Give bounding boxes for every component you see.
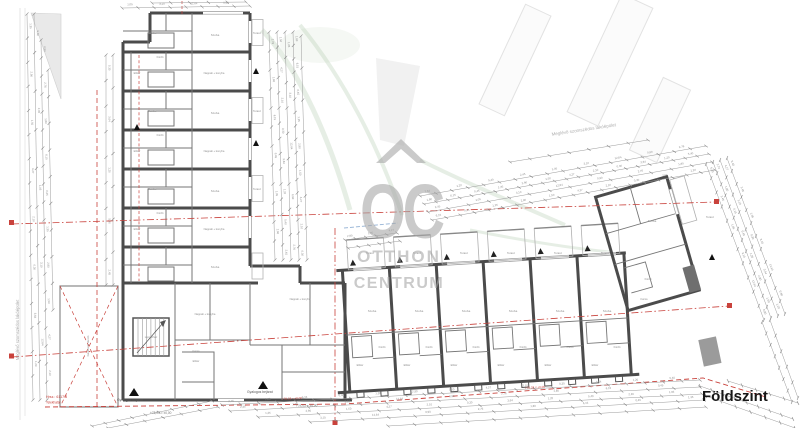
room-label: Fürdő bbox=[426, 345, 433, 349]
level-reference-2: +78,03 = ±0,00 bbox=[296, 403, 318, 408]
dim-label: 5,40 bbox=[36, 30, 40, 36]
dim-label: 1,80 bbox=[678, 161, 684, 166]
room-label: Nappali + konyha bbox=[290, 297, 311, 301]
room-label: Előtér bbox=[592, 363, 599, 367]
dim-label: 4,27 bbox=[31, 168, 35, 174]
dim-label: 5,40 bbox=[688, 151, 694, 156]
room-label: Szoba bbox=[462, 309, 471, 313]
dim-label: 0,90 bbox=[291, 194, 295, 200]
dim-label: 2,45 bbox=[240, 405, 246, 409]
dim-label: 12,64 bbox=[290, 142, 294, 150]
room-label: Fürdő bbox=[614, 345, 621, 349]
dim-label: 1,50 bbox=[449, 387, 455, 391]
room-label: Előtér bbox=[498, 363, 505, 367]
room-label: Fürdő bbox=[157, 211, 164, 215]
dim-label: 5,40 bbox=[709, 167, 715, 174]
room-label: Szoba bbox=[603, 309, 612, 313]
room-label: Fürdő bbox=[379, 345, 386, 349]
dim-label: 0,45 bbox=[740, 230, 746, 237]
dim-label: 6,15 bbox=[295, 63, 299, 69]
room-label: Terasz bbox=[601, 251, 610, 255]
upper-wing-windows bbox=[203, 11, 252, 238]
dim-label: 1,35 bbox=[375, 391, 381, 395]
room-label: Előtér bbox=[134, 149, 141, 153]
dim-label: 3,64 bbox=[282, 158, 286, 164]
dim-label: 2,76 bbox=[292, 244, 296, 250]
dim-label: 1,05 bbox=[730, 223, 736, 230]
room-label: Terasz bbox=[507, 251, 516, 255]
room-label: Előtér bbox=[134, 227, 141, 231]
dim-label: 1,80 bbox=[272, 77, 276, 83]
dim-label: 0,90 bbox=[449, 394, 455, 398]
room-label: Terasz bbox=[706, 215, 715, 219]
dim-label: 2,90 bbox=[347, 233, 353, 238]
dim-label: 2,90 bbox=[276, 229, 280, 235]
room-label: Előtér bbox=[404, 363, 411, 367]
dim-label: 1,20 bbox=[633, 378, 639, 382]
dim-label: 2,45 bbox=[628, 392, 634, 396]
dim-label: 6,15 bbox=[45, 154, 49, 160]
dim-label: 0,90 bbox=[778, 290, 784, 297]
dim-label: 12,64 bbox=[768, 263, 774, 271]
dim-label: 1,05 bbox=[38, 185, 42, 191]
dim-label: 1,50 bbox=[47, 298, 51, 304]
entrance-label-2: Gyalogos bejárat bbox=[247, 390, 273, 394]
dim-label: 1,50 bbox=[279, 37, 283, 43]
dim-label: 0,45 bbox=[658, 383, 664, 387]
dim-label: 6,15 bbox=[583, 401, 589, 405]
dim-label: 1,35 bbox=[492, 203, 498, 208]
dim-label: 2,45 bbox=[520, 172, 526, 177]
room-label: Szoba bbox=[211, 33, 220, 37]
dim-label: 3,64 bbox=[33, 313, 37, 319]
dim-label: 3,10 bbox=[288, 92, 292, 98]
dim-label: 0,90 bbox=[425, 410, 431, 414]
dim-label: 1,20 bbox=[456, 183, 462, 188]
room-label: Szoba bbox=[211, 189, 220, 193]
dim-label: 3,10 bbox=[344, 399, 350, 403]
room-label: Lépcsőház bbox=[145, 335, 158, 339]
dim-label: 2,45 bbox=[740, 186, 746, 193]
dim-label: 2,76 bbox=[478, 407, 484, 411]
dim-label: 3,64 bbox=[762, 268, 768, 275]
dim-label: 2,45 bbox=[37, 108, 41, 114]
dim-label: 12,64 bbox=[396, 397, 404, 401]
dim-label: 1,35 bbox=[297, 116, 301, 122]
dim-label: 2,10 bbox=[427, 402, 433, 406]
dim-label: 1,80 bbox=[44, 118, 48, 124]
dim-label: 2,90 bbox=[298, 143, 302, 149]
dim-label: 6,15 bbox=[302, 395, 308, 399]
room-label: Szoba bbox=[148, 31, 157, 35]
dim-label: 1,05 bbox=[475, 197, 481, 202]
boundary-label: Telekhatár bbox=[46, 401, 62, 405]
dim-label: 0,90 bbox=[43, 46, 47, 52]
room-label: Nappali + konyha bbox=[204, 227, 225, 231]
dim-label: 1,35 bbox=[265, 411, 271, 415]
dim-label: 1,80 bbox=[265, 397, 271, 401]
dim-label: 2,90 bbox=[757, 274, 763, 281]
watermark-roof-icon bbox=[376, 139, 426, 163]
dim-label: 1,80 bbox=[295, 36, 299, 42]
dim-label: 1,05 bbox=[551, 166, 557, 171]
dim-label: 5,40 bbox=[108, 218, 112, 224]
room-label: Fürdő bbox=[520, 345, 527, 349]
neighbor-building-outline bbox=[479, 0, 690, 163]
room-label: Kamra bbox=[640, 298, 648, 301]
watermark-line1: OTTHON bbox=[357, 247, 441, 266]
room-label: Nappali + konyha bbox=[204, 71, 225, 75]
dim-label: 0,45 bbox=[274, 153, 278, 159]
dim-label: 1,20 bbox=[775, 303, 781, 310]
dim-label: 3,10 bbox=[516, 190, 522, 195]
room-label: Szoba bbox=[148, 109, 157, 113]
dim-label: 5,40 bbox=[730, 160, 736, 167]
floor-title: Földszint bbox=[702, 388, 768, 405]
dim-label: 1,05 bbox=[287, 42, 291, 48]
dim-label: 1,20 bbox=[690, 168, 696, 173]
dim-label: 6,15 bbox=[732, 208, 738, 215]
entrance-label-1: Gyalogos bejárat bbox=[117, 398, 143, 402]
dim-label: 2,76 bbox=[501, 391, 507, 395]
dim-label: 4,27 bbox=[386, 404, 392, 408]
dim-label: 4,27 bbox=[280, 67, 284, 73]
dim-label: 1,80 bbox=[530, 404, 536, 408]
room-label: Terasz bbox=[554, 251, 563, 255]
dim-label: 3,64 bbox=[640, 159, 646, 164]
dim-label: 3,64 bbox=[108, 116, 112, 122]
dim-label: 2,10 bbox=[48, 370, 52, 376]
dim-label: 2,90 bbox=[412, 389, 418, 393]
dim-label: 2,76 bbox=[228, 399, 234, 403]
dim-label: 1,35 bbox=[275, 191, 279, 197]
dim-label: 2,76 bbox=[271, 39, 275, 45]
dim-label: 12,64 bbox=[190, 1, 198, 5]
dim-label: 1,35 bbox=[498, 184, 504, 189]
room-label: Szoba bbox=[368, 309, 377, 313]
dim-label: 2,90 bbox=[305, 409, 311, 413]
dim-label: 1,35 bbox=[29, 23, 33, 29]
dim-label: 0,30 bbox=[32, 264, 36, 270]
room-label: Előtér bbox=[545, 363, 552, 367]
dim-label: 2,10 bbox=[32, 216, 36, 222]
room-label: Előtér bbox=[134, 71, 141, 75]
dim-label: 2,45 bbox=[284, 250, 288, 256]
dim-label: 5,40 bbox=[488, 177, 494, 182]
dim-label: 6,15 bbox=[450, 193, 456, 198]
dim-label: 4,27 bbox=[724, 164, 730, 171]
room-label: Szoba bbox=[556, 309, 565, 313]
entrance-triangle bbox=[129, 388, 139, 396]
dim-label: 3,10 bbox=[759, 238, 765, 245]
parcel-number: Hrsz.: 6117/8 bbox=[46, 395, 67, 399]
dim-label: 5,40 bbox=[588, 394, 594, 398]
dim-label: 1,35 bbox=[688, 395, 694, 399]
dim-label: 5,40 bbox=[284, 219, 288, 225]
dim-label: 0,30 bbox=[467, 400, 473, 404]
room-label: Terasz bbox=[253, 187, 262, 191]
dim-label: 1,05 bbox=[749, 212, 755, 219]
dim-label: 1,35 bbox=[749, 252, 755, 259]
room-label: Fürdő bbox=[473, 345, 480, 349]
room-label: Előtér bbox=[193, 359, 200, 363]
dim-label: 1,35 bbox=[46, 226, 50, 232]
dim-label: 12,64 bbox=[614, 155, 622, 160]
dim-label: 4,27 bbox=[577, 188, 583, 193]
dim-label: 0,30 bbox=[300, 250, 304, 256]
dim-label: 2,90 bbox=[29, 71, 33, 77]
dim-label: 0,30 bbox=[108, 65, 112, 71]
dim-label: 2,76 bbox=[43, 82, 47, 88]
dim-label: 0,30 bbox=[616, 164, 622, 169]
dim-label: 0,45 bbox=[45, 190, 49, 196]
room-label: Nappali + konyha bbox=[204, 149, 225, 153]
dim-label: 2,90 bbox=[520, 198, 526, 203]
dim-label: 0,30 bbox=[559, 381, 565, 385]
dim-label: 4,27 bbox=[486, 385, 492, 389]
room-label: Előtér bbox=[357, 363, 364, 367]
room-label: Terasz bbox=[253, 109, 262, 113]
dim-label: 1,80 bbox=[724, 185, 730, 192]
dim-label: 2,90 bbox=[521, 180, 527, 185]
dim-label: 2,45 bbox=[720, 195, 726, 202]
dim-label: 2,10 bbox=[605, 183, 611, 188]
green-area bbox=[280, 27, 360, 63]
dim-label: 2,76 bbox=[679, 144, 685, 149]
dim-label: 1,20 bbox=[548, 396, 554, 400]
dim-label: 1,20 bbox=[108, 167, 112, 173]
dim-label: 0,45 bbox=[296, 89, 300, 95]
dim-label: 0,45 bbox=[338, 393, 344, 397]
dim-label: 2,10 bbox=[737, 199, 743, 206]
dim-label: 12,64 bbox=[372, 413, 380, 417]
shaft-dark bbox=[682, 265, 701, 293]
neighbor-label-top: Meglévő szomszédos lakóépület bbox=[551, 122, 617, 137]
dim-label: 2,76 bbox=[716, 163, 722, 170]
room-label: Szoba bbox=[415, 309, 424, 313]
dim-label: 3,10 bbox=[320, 415, 326, 419]
dim-label: 12,64 bbox=[555, 183, 563, 188]
dim-label: 0,90 bbox=[597, 176, 603, 181]
dim-label: 1,05 bbox=[669, 390, 675, 394]
level-reference-1: +78,03 = ±0,00 bbox=[150, 411, 172, 415]
entrance-triangle bbox=[258, 381, 268, 389]
dim-label: 12,64 bbox=[41, 339, 45, 347]
dim-label: 0,30 bbox=[750, 233, 756, 240]
shaded-patch bbox=[376, 58, 420, 146]
neighbor-label-left: Meglévő szomszédos lakóépület bbox=[15, 299, 20, 360]
room-label: Előtér bbox=[451, 363, 458, 367]
room-label: Fürdő bbox=[157, 133, 164, 137]
dim-label: 1,20 bbox=[664, 155, 670, 160]
dim-label: 4,27 bbox=[299, 197, 303, 203]
dim-label: 2,10 bbox=[300, 224, 304, 230]
dim-label: 1,05 bbox=[127, 2, 133, 6]
dim-label: 1,50 bbox=[549, 193, 555, 198]
dim-label: 0,90 bbox=[762, 308, 768, 315]
room-label: Szoba bbox=[648, 219, 657, 223]
dim-label: 3,10 bbox=[159, 2, 165, 6]
dim-label: 0,30 bbox=[634, 178, 640, 183]
room-label: Szoba bbox=[148, 187, 157, 191]
dim-label: 6,15 bbox=[273, 115, 277, 121]
dim-label: 3,10 bbox=[39, 262, 43, 268]
end-block bbox=[596, 172, 716, 311]
dim-label: 3,64 bbox=[507, 398, 513, 402]
floor-plan-canvas: 1,352,901,504,272,100,303,641,205,402,45… bbox=[0, 0, 800, 428]
dim-label: 1,50 bbox=[298, 170, 302, 176]
dim-label: 2,90 bbox=[46, 262, 50, 268]
room-label: Szoba bbox=[509, 309, 518, 313]
dim-label: 2,76 bbox=[637, 168, 643, 173]
room-label: Terasz bbox=[253, 31, 262, 35]
dim-label: 1,20 bbox=[283, 189, 287, 195]
dim-label: 1,50 bbox=[765, 297, 771, 304]
dim-label: 3,10 bbox=[583, 161, 589, 166]
room-label: Terasz bbox=[460, 251, 469, 255]
room-label: Szoba bbox=[211, 265, 220, 269]
dim-label: 1,80 bbox=[553, 389, 559, 393]
room-label: Gépkocsi tároló bbox=[86, 335, 90, 356]
dim-label: 0,45 bbox=[635, 398, 641, 402]
watermark-line2: CENTRUM bbox=[354, 275, 445, 292]
dim-label: 4,27 bbox=[569, 172, 575, 177]
upper-wing-balconies bbox=[252, 20, 263, 280]
dim-label: 2,10 bbox=[593, 168, 599, 173]
dim-label: 2,10 bbox=[280, 98, 284, 104]
hatched-block bbox=[698, 336, 721, 366]
room-label: Fürdő bbox=[567, 345, 574, 349]
room-label: Fürdő bbox=[645, 277, 652, 281]
dim-label: 1,20 bbox=[34, 361, 38, 367]
dim-label: 0,30 bbox=[281, 128, 285, 134]
dim-label: 12,64 bbox=[751, 279, 757, 287]
dim-label: 6,15 bbox=[606, 386, 612, 390]
room-label: Szoba bbox=[211, 111, 220, 115]
dim-label: 5,40 bbox=[669, 376, 675, 380]
room-label: Kamra bbox=[192, 350, 200, 353]
dim-label: 4,27 bbox=[48, 334, 52, 340]
dim-label: 1,50 bbox=[545, 176, 551, 181]
corner-block bbox=[60, 283, 352, 407]
room-label: Fürdő bbox=[157, 55, 164, 59]
dim-label: 2,45 bbox=[108, 269, 112, 275]
watermark-monogram: OC bbox=[360, 168, 444, 255]
floor-plan-page: 1,352,901,504,272,100,303,641,205,402,45… bbox=[0, 0, 800, 428]
room-label: Nappali + konyha bbox=[195, 312, 216, 316]
site-context bbox=[20, 0, 690, 420]
dim-label: 1,50 bbox=[30, 120, 34, 126]
dim-label: 1,50 bbox=[346, 407, 352, 411]
dim-label: 3,64 bbox=[596, 380, 602, 384]
dim-label: 0,45 bbox=[464, 208, 470, 213]
